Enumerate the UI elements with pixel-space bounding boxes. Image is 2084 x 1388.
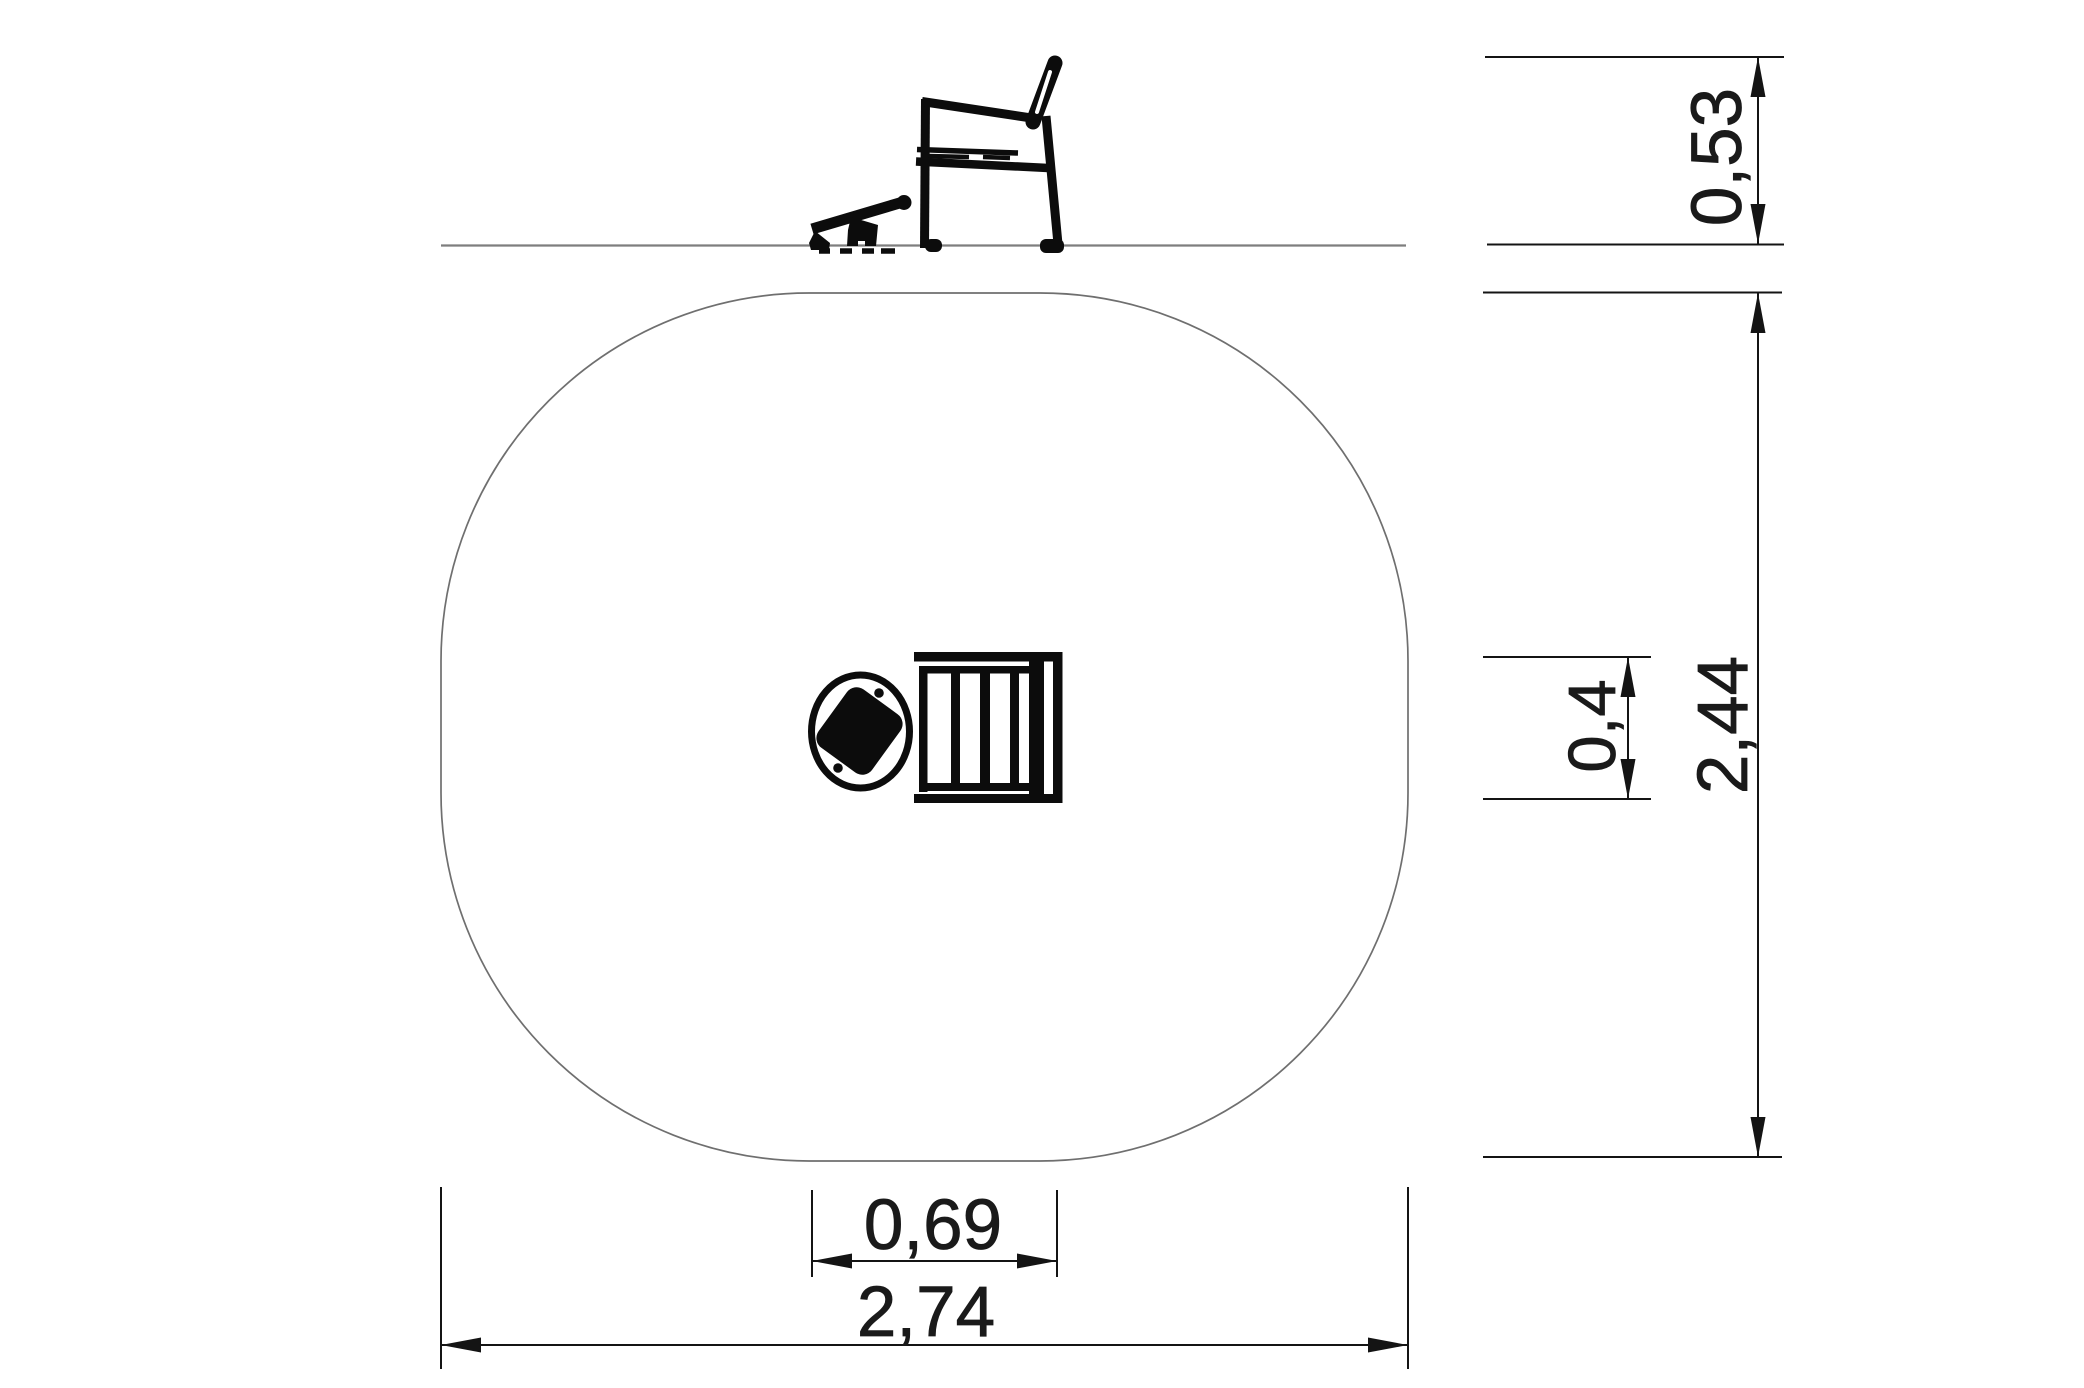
svg-text:0,69: 0,69 — [864, 1186, 1002, 1265]
svg-text:2,74: 2,74 — [857, 1273, 995, 1352]
svg-text:0,53: 0,53 — [1678, 88, 1757, 226]
svg-text:2,44: 2,44 — [1684, 656, 1763, 794]
svg-text:0,4: 0,4 — [1555, 679, 1630, 772]
